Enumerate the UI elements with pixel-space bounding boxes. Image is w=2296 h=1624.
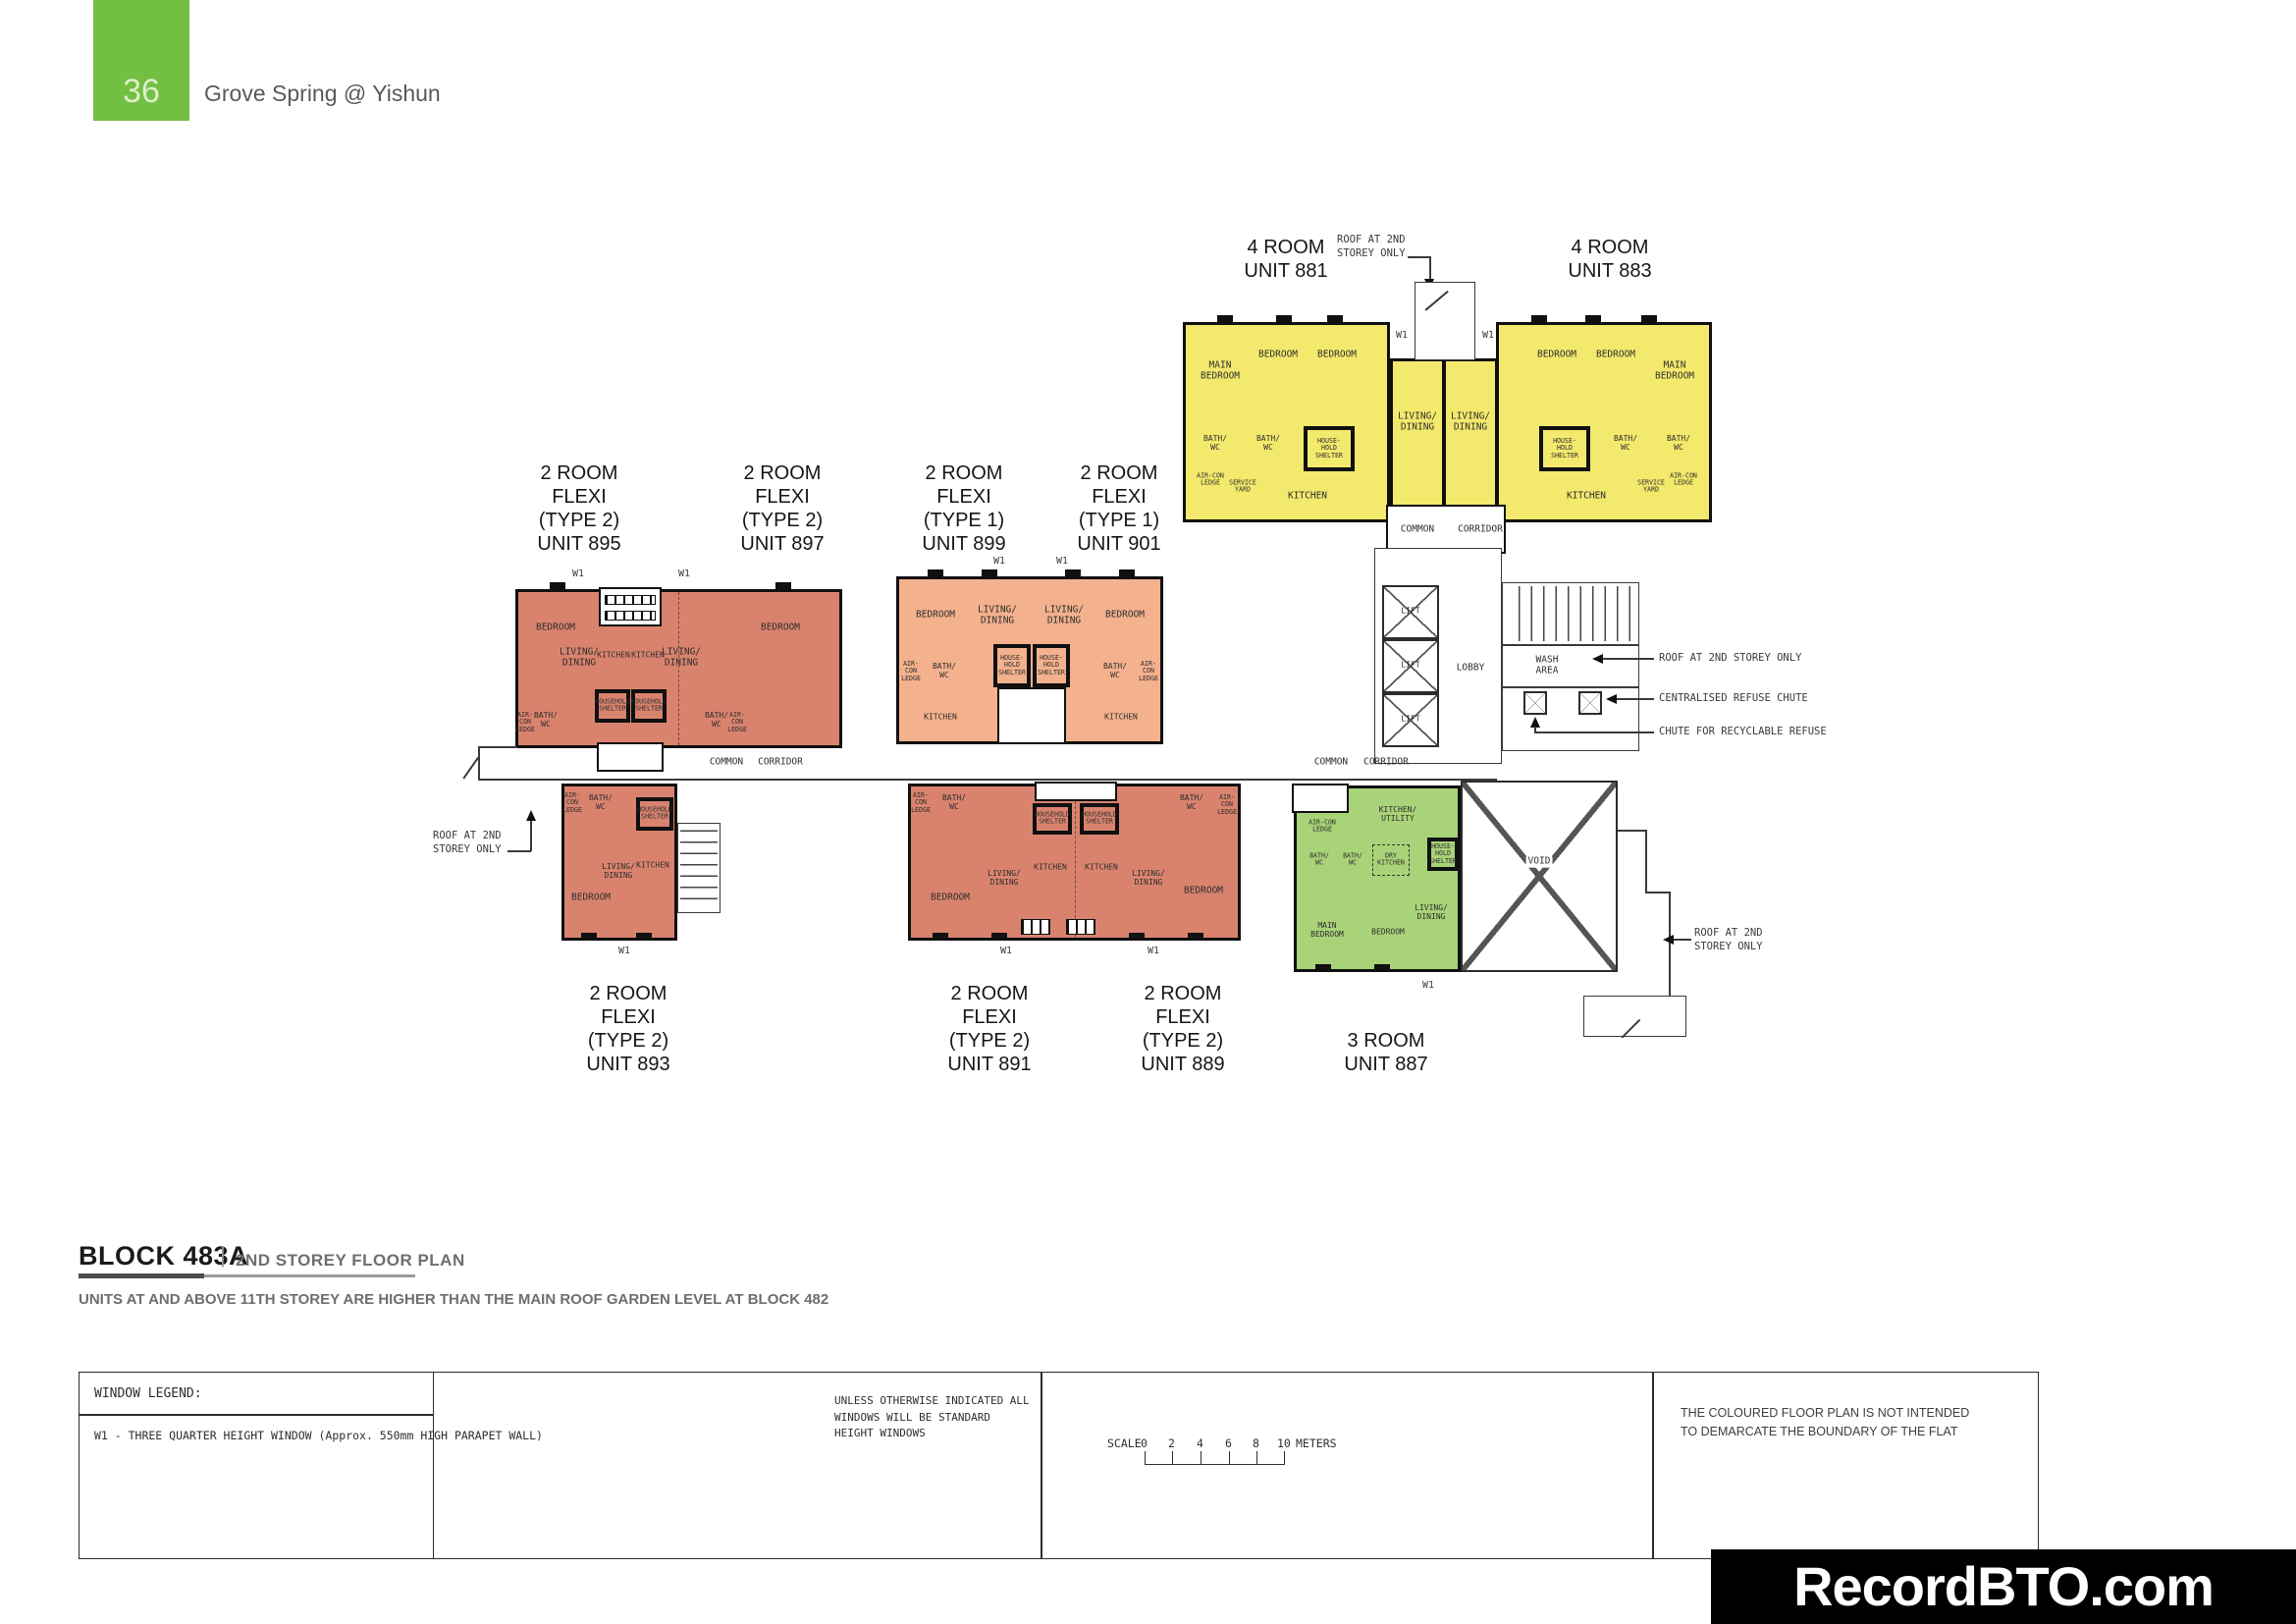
scale-tick-8: 8 bbox=[1253, 1436, 1259, 1450]
room-label-aircon-ledge: AIR-CON LEDGE bbox=[1308, 820, 1336, 835]
room-label-living-dining: LIVING/ DINING bbox=[978, 605, 1017, 625]
recyclable-chute-annotation: CHUTE FOR RECYCLABLE REFUSE bbox=[1659, 726, 1827, 739]
roof-outline-box bbox=[1583, 996, 1686, 1037]
room-label-bedroom: BEDROOM bbox=[1105, 611, 1145, 622]
room-label-household-shelter: HOUSE- HOLD SHELTER bbox=[1038, 655, 1065, 677]
room-label-bedroom: BEDROOM bbox=[1184, 887, 1223, 897]
unit-label-887: 3 ROOM UNIT 887 bbox=[1344, 1029, 1427, 1076]
room-label-bath-wc: BATH/ WC bbox=[942, 794, 966, 812]
room-label-household-shelter: HOUSEHOLD SHELTER bbox=[1082, 812, 1117, 827]
room-label-living-dining: LIVING/ DINING bbox=[1398, 411, 1437, 432]
window-legend-title: WINDOW LEGEND: bbox=[94, 1386, 202, 1401]
unit-881-living-wing bbox=[1390, 358, 1445, 522]
scale-bar-tick bbox=[1229, 1451, 1230, 1465]
legend-cell-scale bbox=[1041, 1372, 1654, 1559]
room-label-living-dining: LIVING/ DINING bbox=[602, 863, 635, 881]
void-label: VOID bbox=[1526, 857, 1553, 868]
watermark-banner: RecordBTO.com bbox=[1711, 1549, 2296, 1624]
room-label-bath-wc: BATH/ WC bbox=[1203, 435, 1227, 453]
room-label-aircon-ledge: AIR-CON LEDGE bbox=[1197, 473, 1224, 488]
room-label-kitchen: KITCHEN bbox=[1034, 864, 1067, 873]
room-label-main-bedroom: MAIN BEDROOM bbox=[1310, 922, 1344, 940]
window-sill bbox=[605, 595, 656, 605]
room-label-aircon-ledge: AIR- CON LEDGE bbox=[727, 712, 747, 733]
entry-recess bbox=[1035, 782, 1117, 801]
wall-line bbox=[1502, 644, 1639, 646]
unit-883-living-wing bbox=[1443, 358, 1498, 522]
window-notch bbox=[1641, 315, 1657, 323]
title-divider: | bbox=[220, 1243, 226, 1269]
room-label-kitchen: KITCHEN bbox=[631, 652, 665, 661]
title-rule-gray bbox=[204, 1274, 415, 1277]
room-label-living-dining: LIVING/ DINING bbox=[1132, 870, 1165, 888]
w1-window-label: W1 bbox=[1000, 946, 1012, 956]
title-rule-dark bbox=[79, 1273, 204, 1278]
room-label-household-shelter: HOUSEHOLD SHELTER bbox=[637, 807, 672, 822]
corridor-label-common: COMMON bbox=[1401, 525, 1434, 536]
room-label-aircon-ledge: AIR- CON LEDGE bbox=[515, 712, 535, 733]
room-label-kitchen: KITCHEN bbox=[636, 862, 669, 871]
roof-annotation-left: ROOF AT 2ND STOREY ONLY bbox=[433, 830, 502, 856]
scale-bar-baseline bbox=[1145, 1464, 1285, 1465]
room-label-living-dining: LIVING/ DINING bbox=[1415, 904, 1448, 922]
room-label-bedroom: BEDROOM bbox=[571, 893, 611, 904]
window-sill bbox=[1066, 919, 1095, 935]
boundary-line bbox=[478, 746, 517, 748]
window-notch bbox=[933, 933, 948, 941]
windows-standard-note: UNLESS OTHERWISE INDICATED ALL WINDOWS W… bbox=[834, 1393, 1031, 1442]
w1-window-label: W1 bbox=[993, 556, 1005, 567]
room-label-aircon-ledge: AIR- CON LEDGE bbox=[911, 792, 931, 814]
window-notch bbox=[1129, 933, 1145, 941]
room-label-main-bedroom: MAIN BEDROOM bbox=[1655, 360, 1694, 381]
room-label-living-dining: LIVING/ DINING bbox=[1044, 605, 1084, 625]
staircase bbox=[1508, 586, 1631, 641]
room-label-bedroom: BEDROOM bbox=[931, 893, 970, 904]
window-notch bbox=[550, 582, 565, 590]
w1-legend-description: W1 - THREE QUARTER HEIGHT WINDOW (Approx… bbox=[94, 1429, 543, 1442]
refuse-chute-box bbox=[1578, 691, 1602, 715]
w1-window-label: W1 bbox=[1148, 946, 1159, 956]
room-label-bedroom: BEDROOM bbox=[916, 611, 955, 622]
void-area bbox=[1461, 781, 1618, 972]
page-number-box: 36 bbox=[93, 0, 189, 121]
unit-label-899: 2 ROOM FLEXI (TYPE 1) UNIT 899 bbox=[922, 461, 1005, 556]
w1-window-label: W1 bbox=[1396, 330, 1408, 341]
room-label-household-shelter: HOUSE- HOLD SHELTER bbox=[1551, 438, 1578, 460]
plan-title: 2ND STOREY FLOOR PLAN bbox=[236, 1251, 465, 1271]
window-sill bbox=[605, 611, 656, 621]
room-label-aircon-ledge: AIR- CON LEDGE bbox=[1217, 794, 1237, 816]
wash-area-label: WASH AREA bbox=[1536, 655, 1559, 676]
floor-plan-sheet: 36 Grove Spring @ Yishun 4 ROOM UNIT 881… bbox=[0, 0, 2296, 1624]
w1-window-label: W1 bbox=[678, 568, 690, 579]
window-notch bbox=[636, 933, 652, 941]
arrow-left-icon bbox=[1592, 654, 1603, 664]
scale-tick-2: 2 bbox=[1168, 1436, 1175, 1450]
unit-887 bbox=[1294, 785, 1461, 972]
room-label-bath-wc: BATH/ WC bbox=[1614, 435, 1637, 453]
scale-bar-tick bbox=[1284, 1451, 1285, 1465]
room-label-bedroom: BEDROOM bbox=[1258, 351, 1298, 361]
room-label-living-dining: LIVING/ DINING bbox=[988, 870, 1021, 888]
leader-line bbox=[1617, 698, 1654, 700]
room-label-aircon-ledge: AIR- CON LEDGE bbox=[901, 661, 921, 682]
window-notch bbox=[1315, 964, 1331, 972]
room-label-kitchen: KITCHEN bbox=[1288, 492, 1327, 503]
leader-line bbox=[1408, 256, 1429, 258]
room-label-household-shelter: HOUSEHOLD SHELTER bbox=[1035, 812, 1070, 827]
party-wall-dashed bbox=[1075, 786, 1076, 938]
entry-recess bbox=[597, 742, 664, 772]
boundary-break-mark bbox=[462, 757, 478, 779]
window-notch bbox=[775, 582, 791, 590]
boundary-note: THE COLOURED FLOOR PLAN IS NOT INTENDED … bbox=[1681, 1404, 1969, 1441]
w1-window-label: W1 bbox=[1482, 330, 1494, 341]
unit-label-901: 2 ROOM FLEXI (TYPE 1) UNIT 901 bbox=[1077, 461, 1160, 556]
window-notch bbox=[1217, 315, 1233, 323]
storey-note: UNITS AT AND ABOVE 11TH STOREY ARE HIGHE… bbox=[79, 1291, 828, 1308]
leader-line bbox=[1534, 731, 1654, 733]
room-label-bath-wc: BATH/ WC bbox=[1667, 435, 1690, 453]
room-label-service-yard: SERVICE YARD bbox=[1637, 480, 1665, 495]
scale-tick-4: 4 bbox=[1197, 1436, 1203, 1450]
entry-recess bbox=[997, 687, 1066, 744]
room-label-household-shelter: HOUSE- HOLD SHELTER bbox=[1315, 438, 1343, 460]
lift-label: LIFT bbox=[1401, 716, 1419, 725]
roof-annotation-right: ROOF AT 2ND STOREY ONLY bbox=[1659, 652, 1801, 666]
lift-label: LIFT bbox=[1401, 662, 1419, 671]
corridor-label-common: COMMON bbox=[1314, 758, 1348, 769]
room-label-household-shelter: HOUSEHOLD SHELTER bbox=[631, 699, 667, 714]
refuse-chute-annotation: CENTRALISED REFUSE CHUTE bbox=[1659, 692, 1808, 706]
scale-bar-tick bbox=[1201, 1451, 1201, 1465]
room-label-living-dining: LIVING/ DINING bbox=[560, 647, 599, 668]
w1-window-label: W1 bbox=[618, 946, 630, 956]
room-label-kitchen: KITCHEN bbox=[1567, 492, 1606, 503]
roof-notch bbox=[1292, 784, 1349, 813]
party-wall-dashed bbox=[678, 592, 679, 745]
room-label-household-shelter: HOUSE- HOLD SHELTER bbox=[998, 655, 1026, 677]
leader-line bbox=[530, 821, 532, 851]
window-notch bbox=[1119, 569, 1135, 577]
scale-label: SCALE bbox=[1107, 1436, 1142, 1450]
room-label-bedroom: BEDROOM bbox=[1371, 929, 1405, 938]
scale-tick-0: 0 bbox=[1141, 1436, 1148, 1450]
unit-label-889: 2 ROOM FLEXI (TYPE 2) UNIT 889 bbox=[1141, 982, 1224, 1076]
room-label-household-shelter: HOUSEHOLD SHELTER bbox=[595, 699, 630, 714]
leader-line bbox=[1429, 256, 1431, 280]
room-label-bedroom: BEDROOM bbox=[761, 623, 800, 634]
window-notch bbox=[982, 569, 997, 577]
corridor-south-wall bbox=[478, 779, 1497, 781]
room-label-bedroom: BEDROOM bbox=[1317, 351, 1357, 361]
scale-bar-tick bbox=[1172, 1451, 1173, 1465]
room-label-bedroom: BEDROOM bbox=[536, 623, 575, 634]
service-recess bbox=[599, 587, 662, 626]
w1-window-label: W1 bbox=[1422, 980, 1434, 991]
lobby-label: LOBBY bbox=[1457, 664, 1485, 675]
room-label-bath-wc: BATH/ WC bbox=[1309, 853, 1329, 868]
roof-outline-line bbox=[1618, 830, 1645, 832]
room-label-dry-kitchen: DRY KITCHEN bbox=[1377, 853, 1405, 868]
unit-label-893: 2 ROOM FLEXI (TYPE 2) UNIT 893 bbox=[586, 982, 669, 1076]
window-notch bbox=[1065, 569, 1081, 577]
corridor-label-common: COMMON bbox=[710, 758, 743, 769]
room-label-bath-wc: BATH/ WC bbox=[1180, 794, 1203, 812]
room-label-bath-wc: BATH/ WC bbox=[1343, 853, 1362, 868]
room-label-service-yard: SERVICE YARD bbox=[1229, 480, 1256, 495]
room-label-bath-wc: BATH/ WC bbox=[1256, 435, 1280, 453]
room-label-kitchen: KITCHEN bbox=[924, 714, 957, 723]
arrow-up-icon bbox=[526, 810, 536, 821]
legend-cell-boundary-note bbox=[1652, 1372, 2039, 1559]
unit-label-883: 4 ROOM UNIT 883 bbox=[1568, 236, 1651, 283]
window-notch bbox=[1276, 315, 1292, 323]
room-label-bath-wc: BATH/ WC bbox=[933, 663, 956, 680]
arrow-left-icon bbox=[1663, 935, 1674, 945]
room-label-main-bedroom: MAIN BEDROOM bbox=[1201, 360, 1240, 381]
room-label-bedroom: BEDROOM bbox=[1596, 351, 1635, 361]
arrow-left-icon bbox=[1606, 694, 1617, 704]
staircase bbox=[680, 827, 718, 909]
window-notch bbox=[991, 933, 1007, 941]
page-title: Grove Spring @ Yishun bbox=[204, 81, 441, 107]
unit-label-895: 2 ROOM FLEXI (TYPE 2) UNIT 895 bbox=[537, 461, 620, 556]
scale-unit: METERS bbox=[1296, 1436, 1337, 1450]
scale-tick-10: 10 bbox=[1277, 1436, 1291, 1450]
recyclable-chute-box bbox=[1523, 691, 1547, 715]
boundary-line bbox=[478, 746, 480, 780]
w1-window-label: W1 bbox=[1056, 556, 1068, 567]
room-label-kitchen-utility: KITCHEN/ UTILITY bbox=[1379, 806, 1417, 824]
window-notch bbox=[581, 933, 597, 941]
lift-label: LIFT bbox=[1401, 608, 1419, 617]
room-label-living-dining: LIVING/ DINING bbox=[662, 647, 701, 668]
chute-room bbox=[1502, 687, 1639, 751]
room-label-bedroom: BEDROOM bbox=[1537, 351, 1576, 361]
scale-bar-tick bbox=[1145, 1451, 1146, 1465]
room-label-kitchen: KITCHEN bbox=[1104, 714, 1138, 723]
window-notch bbox=[1531, 315, 1547, 323]
window-sill bbox=[1021, 919, 1050, 935]
page-number: 36 bbox=[93, 73, 189, 111]
roof-annotation-bottom-right: ROOF AT 2ND STOREY ONLY bbox=[1694, 927, 1763, 953]
window-notch bbox=[1327, 315, 1343, 323]
window-notch bbox=[1188, 933, 1203, 941]
roof-annotation-top: ROOF AT 2ND STOREY ONLY bbox=[1337, 234, 1406, 260]
room-label-aircon-ledge: AIR-CON LEDGE bbox=[1670, 473, 1697, 488]
window-notch bbox=[928, 569, 943, 577]
room-label-bath-wc: BATH/ WC bbox=[1103, 663, 1127, 680]
window-notch bbox=[1585, 315, 1601, 323]
room-label-aircon-ledge: AIR- CON LEDGE bbox=[1139, 661, 1158, 682]
unit-label-881: 4 ROOM UNIT 881 bbox=[1244, 236, 1327, 283]
scale-tick-6: 6 bbox=[1225, 1436, 1232, 1450]
leader-line bbox=[1674, 939, 1691, 941]
room-label-bath-wc: BATH/ WC bbox=[589, 794, 613, 812]
corridor-label-corridor: CORRIDOR bbox=[1363, 758, 1409, 769]
scale-bar-tick bbox=[1256, 1451, 1257, 1465]
room-label-bath-wc: BATH/ WC bbox=[534, 712, 558, 730]
legend-header-divider bbox=[79, 1414, 434, 1416]
w1-window-label: W1 bbox=[572, 568, 584, 579]
leader-line bbox=[1603, 658, 1654, 660]
corridor-label-corridor: CORRIDOR bbox=[1458, 525, 1503, 536]
roof-outline-line bbox=[1645, 830, 1647, 892]
unit-label-891: 2 ROOM FLEXI (TYPE 2) UNIT 891 bbox=[947, 982, 1031, 1076]
roof-outline-line bbox=[1645, 892, 1669, 893]
room-label-kitchen: KITCHEN bbox=[1085, 864, 1118, 873]
room-label-household-shelter: HOUSE- HOLD SHELTER bbox=[1429, 843, 1457, 865]
room-label-bath-wc: BATH/ WC bbox=[705, 712, 728, 730]
room-label-kitchen: KITCHEN bbox=[597, 652, 630, 661]
leader-line bbox=[507, 850, 531, 852]
room-label-living-dining: LIVING/ DINING bbox=[1451, 411, 1490, 432]
corridor-label-corridor: CORRIDOR bbox=[758, 758, 803, 769]
room-label-aircon-ledge: AIR- CON LEDGE bbox=[562, 792, 582, 814]
unit-label-897: 2 ROOM FLEXI (TYPE 2) UNIT 897 bbox=[740, 461, 824, 556]
window-notch bbox=[1374, 964, 1390, 972]
